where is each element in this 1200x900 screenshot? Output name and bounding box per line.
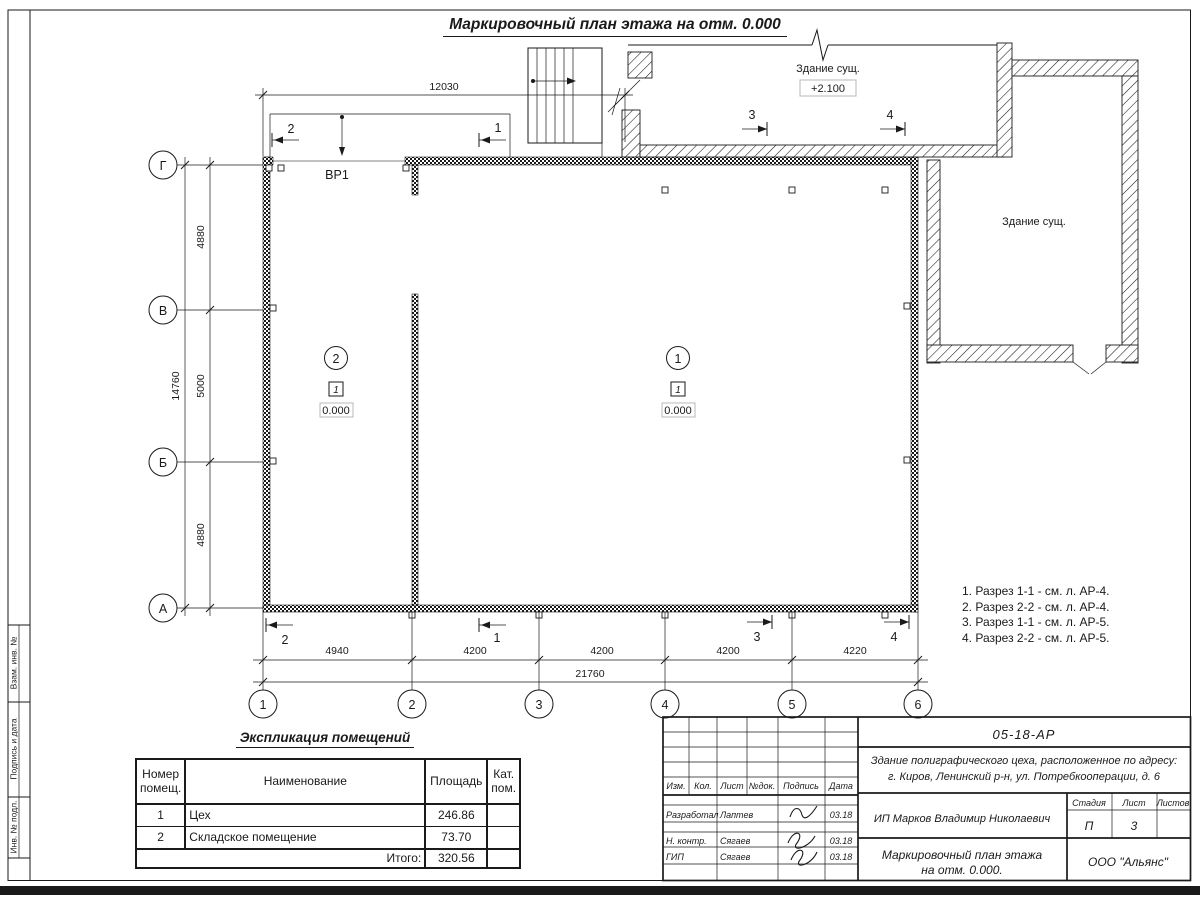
- client: ИП Марков Владимир Николаевич: [874, 813, 1051, 825]
- dim-bottom-3: 4200: [590, 645, 614, 657]
- role-3-name: Сягаев: [720, 852, 751, 862]
- axis-row-v: В: [159, 304, 167, 318]
- dimensions-left: 4880 5000 4880 14760 Г В Б А: [149, 151, 263, 622]
- section-bottom-2: 2: [282, 633, 289, 647]
- section-top-3: 3: [749, 108, 756, 122]
- room-marker-1: 1 1 0.000: [662, 347, 695, 418]
- section-top-2: 2: [288, 122, 295, 136]
- strip-label-podpis: Подпись и дата: [5, 712, 21, 787]
- section-top-4: 4: [887, 108, 894, 122]
- sheet-title-line1: Маркировочный план этажа: [882, 848, 1043, 862]
- col-ndok: №док.: [749, 781, 775, 791]
- room-1-number: 1: [675, 352, 682, 366]
- axis-col-3: 3: [536, 698, 543, 712]
- role-3: ГИП: [666, 852, 684, 862]
- stage-label: Стадия: [1072, 798, 1106, 808]
- header-area: Площадь: [425, 759, 487, 804]
- sheet-number: 3: [1131, 819, 1138, 833]
- row-name: Складское помещение: [185, 827, 425, 850]
- signature-2: [788, 833, 815, 848]
- role-2-name: Сягаев: [720, 836, 751, 846]
- total-row: Итого: 320.56: [136, 849, 520, 868]
- section-bottom-3: 3: [754, 630, 761, 644]
- room-1-elevation: 0.000: [664, 405, 692, 417]
- role-1-name: Лаптев: [719, 810, 754, 820]
- explication-title: Экспликация помещений: [175, 729, 475, 748]
- row-number: 2: [136, 827, 185, 850]
- gate-label: ВР1: [325, 168, 349, 182]
- existing-top-elevation: +2.100: [811, 83, 845, 95]
- dim-bottom-5: 4220: [843, 645, 867, 657]
- role-2: Н. контр.: [666, 836, 707, 846]
- drawing-sheet: Здание сущ. +2.100 Здание сущ. ВР1 12030: [0, 0, 1200, 900]
- existing-building-right: Здание сущ.: [927, 60, 1138, 374]
- axis-col-6: 6: [915, 698, 922, 712]
- dim-left-total: 14760: [170, 371, 182, 400]
- existing-top-label: Здание сущ.: [796, 63, 860, 75]
- axis-col-4: 4: [662, 698, 669, 712]
- section-bottom-1: 1: [494, 631, 501, 645]
- dim-bottom-2: 4200: [463, 645, 487, 657]
- main-building-walls: [263, 157, 918, 618]
- col-izm: Изм.: [666, 781, 685, 791]
- dim-left-3: 4880: [195, 523, 207, 547]
- table-row: 2 Складское помещение 73.70: [136, 827, 520, 850]
- dimension-top: 12030: [255, 81, 633, 156]
- axis-row-a: А: [159, 602, 168, 616]
- axis-col-1: 1: [260, 698, 267, 712]
- dim-left-2: 5000: [195, 374, 207, 398]
- gate-bp1: ВР1: [270, 114, 510, 182]
- sheet-label: Лист: [1121, 798, 1146, 808]
- section-notes: 1. Разрез 1-1 - см. л. АР-4. 2. Разрез 2…: [962, 584, 1110, 646]
- note-line: 2. Разрез 2-2 - см. л. АР-4.: [962, 600, 1110, 616]
- dim-bottom-1: 4940: [325, 645, 349, 657]
- axis-row-b: Б: [159, 456, 167, 470]
- total-area: 320.56: [425, 849, 487, 868]
- section-bottom-4: 4: [891, 630, 898, 644]
- role-1: Разработал: [666, 810, 718, 820]
- page-title: Маркировочный план этажа на отм. 0.000: [415, 16, 815, 37]
- dim-left-1: 4880: [195, 225, 207, 249]
- room-2-number: 2: [333, 352, 340, 366]
- table-row: 1 Цех 246.86: [136, 804, 520, 827]
- company: ООО "Альянс": [1088, 855, 1169, 869]
- row-number: 1: [136, 804, 185, 827]
- axis-col-5: 5: [789, 698, 796, 712]
- header-number: Номер помещ.: [136, 759, 185, 804]
- doc-code: 05-18-АР: [993, 727, 1056, 742]
- title-block: Изм. Кол. Лист №док. Подпись Дата Разраб…: [663, 717, 1191, 881]
- dim-bottom-4: 4200: [716, 645, 740, 657]
- col-list: Лист: [719, 781, 744, 791]
- total-label: Итого:: [136, 849, 425, 868]
- strip-label-inv: Инв. № подл.: [5, 790, 21, 865]
- strip-label-vzam: Взам. инв. №: [5, 626, 21, 701]
- signature-1: [790, 806, 817, 818]
- note-line: 4. Разрез 2-2 - см. л. АР-5.: [962, 631, 1110, 647]
- room-2-elevation: 0.000: [322, 405, 350, 417]
- role-3-date: 03.18: [830, 852, 853, 862]
- object-line1: Здание полиграфического цеха, расположен…: [871, 755, 1177, 767]
- role-2-date: 03.18: [830, 836, 853, 846]
- stairs: [528, 48, 602, 157]
- col-podpis: Подпись: [783, 781, 819, 791]
- explication-table: Номер помещ. Наименование Площадь Кат. п…: [135, 758, 521, 869]
- row-area: 73.70: [425, 827, 487, 850]
- signature-3: [791, 850, 817, 865]
- axis-row-g: Г: [160, 159, 167, 173]
- section-markers: 2 1 3 4 2 1 3 4: [266, 108, 909, 647]
- row-category: [487, 827, 520, 850]
- room-2-category: 1: [333, 385, 339, 396]
- col-data: Дата: [828, 781, 853, 791]
- dim-bottom-total: 21760: [575, 668, 604, 680]
- page-title-text: Маркировочный план этажа на отм. 0.000: [443, 16, 787, 37]
- sheets-label: Листов: [1156, 798, 1190, 808]
- section-top-1: 1: [495, 121, 502, 135]
- dimensions-bottom: 4940 4200 4200 4200 4220 21760 1 2 3 4 5…: [249, 612, 932, 718]
- existing-building-top: Здание сущ. +2.100: [608, 30, 1012, 157]
- total-category: [487, 849, 520, 868]
- note-line: 1. Разрез 1-1 - см. л. АР-4.: [962, 584, 1110, 600]
- room-1-category: 1: [675, 385, 681, 396]
- sheet-title-line2: на отм. 0.000.: [921, 863, 1002, 877]
- note-line: 3. Разрез 1-1 - см. л. АР-5.: [962, 615, 1110, 631]
- explication-header-row: Номер помещ. Наименование Площадь Кат. п…: [136, 759, 520, 804]
- col-kol: Кол.: [694, 781, 712, 791]
- axis-col-2: 2: [409, 698, 416, 712]
- row-category: [487, 804, 520, 827]
- existing-right-label: Здание сущ.: [1002, 216, 1066, 228]
- stage-value: П: [1085, 819, 1094, 833]
- object-line2: г. Киров, Ленинский р-н, ул. Потребкоопе…: [888, 771, 1161, 783]
- row-name: Цех: [185, 804, 425, 827]
- dim-top: 12030: [429, 81, 458, 93]
- role-1-date: 03.18: [830, 810, 853, 820]
- explication-title-text: Экспликация помещений: [236, 730, 415, 748]
- room-marker-2: 2 1 0.000: [320, 347, 353, 418]
- row-area: 246.86: [425, 804, 487, 827]
- header-name: Наименование: [185, 759, 425, 804]
- header-category: Кат. пом.: [487, 759, 520, 804]
